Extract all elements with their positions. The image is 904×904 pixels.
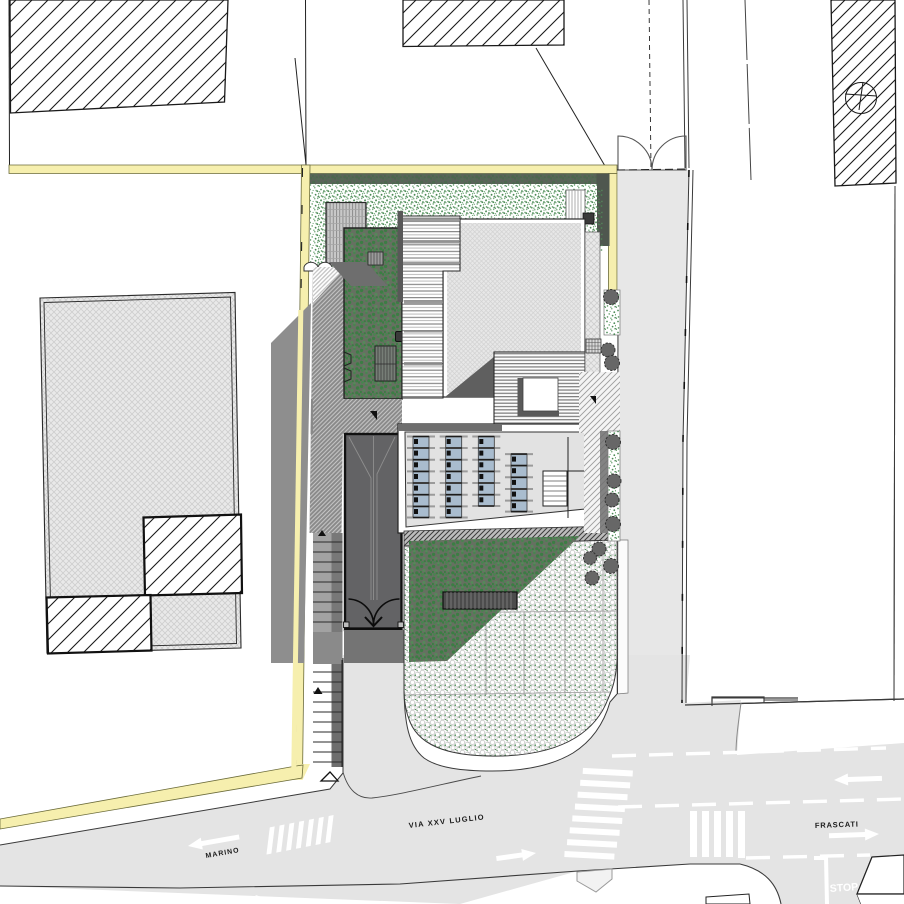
svg-text:FRASCATI: FRASCATI [815,819,859,830]
svg-text:STOP: STOP [829,881,858,895]
